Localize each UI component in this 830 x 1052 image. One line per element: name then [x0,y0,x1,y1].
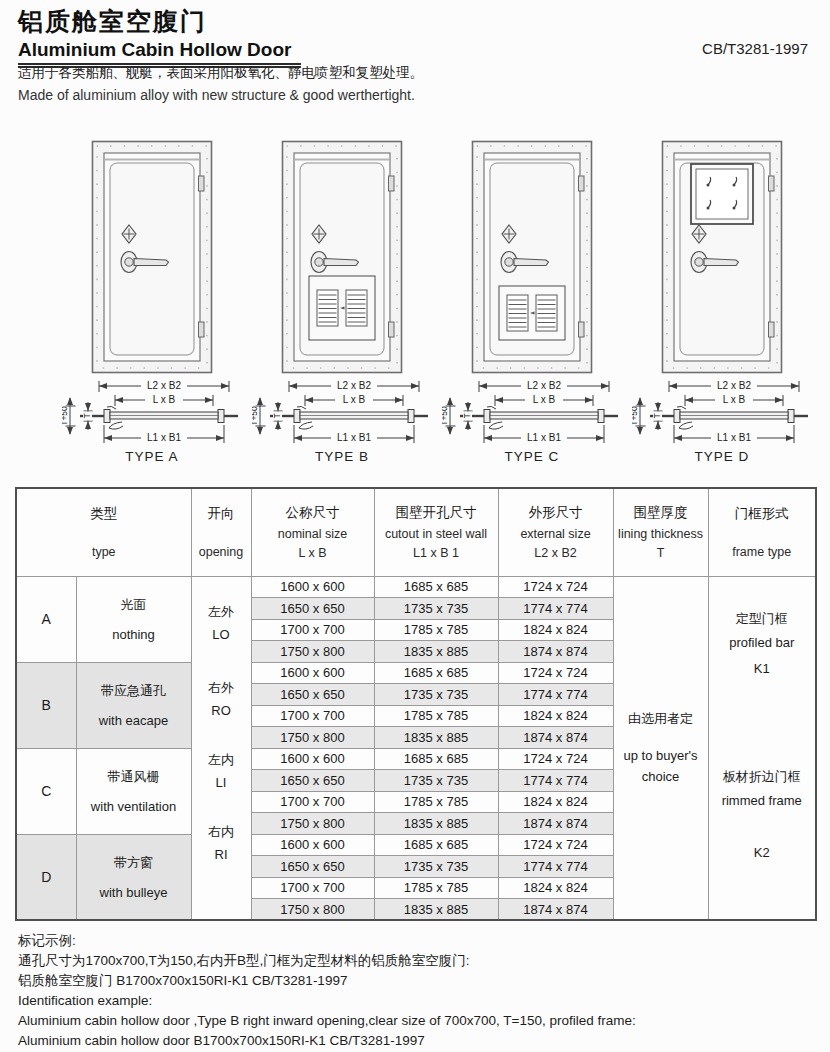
standard-code: CB/T3281-1997 [702,40,808,57]
dim-label-outer: L2 x B2 [527,380,561,391]
table-header-row: 类型type 开向opening 公称尺寸nominal sizeL x B 围… [16,488,816,576]
type-desc-a: 光面 nothing [76,576,191,662]
description-zh: 适用于各类船舶、舰艇，表面采用阳极氧化、静电喷塑和复塑处理。 [18,64,423,82]
opening-li: 左内LI [192,748,251,794]
door-diagram-type-b [281,140,403,374]
identification-example: 标记示例: 通孔尺寸为1700x700,T为150,右内开B型,门框为定型材料的… [18,931,636,1051]
door-figures-row: L2 x B2 L x B L1 x B1 T+50 T TYPE A L2 x… [62,140,812,464]
col-header-type: 类型type [16,488,191,576]
thickness-cell: 由选用者定 up to buyer's choice [613,576,708,920]
col-header-thickness: 围壁厚度lining thicknessT [613,488,708,576]
external-size-cell: 1724 x 724 [498,576,613,598]
example-line2-en: Aluminium cabin hollow door B1700x700x15… [18,1031,636,1051]
spec-table: 类型type 开向opening 公称尺寸nominal sizeL x B 围… [15,487,817,921]
cross-section-type-a: L2 x B2 L x B L1 x B1 T+50 T [62,378,242,448]
dim-label-nominal: L x B [153,394,176,405]
opening-ro: 右外RO [192,676,251,722]
example-line1-zh: 通孔尺寸为1700x700,T为150,右内开B型,门框为定型材料的铝质舱室空腹… [18,951,636,971]
type-letter-d: D [16,834,76,920]
dim-label-nominal: L x B [533,394,556,405]
cutout-size-cell: 1685 x 685 [374,576,498,598]
dim-label-t50: T+50 [442,406,449,426]
col-header-frame: 门框形式frame type [708,488,816,576]
dim-label-t50: T+50 [252,406,259,426]
type-desc-c: 带通风栅 with ventilation [76,748,191,834]
dim-label-t50: T+50 [632,406,639,426]
catalog-page: 铝质舱室空腹门 Aluminium Cabin Hollow Door CB/T… [0,0,830,1052]
door-figure-type-b: L2 x B2 L x B L1 x B1 T+50 T TYPE B [252,140,432,464]
dim-label-t: T [652,413,662,418]
door-figure-type-c: L2 x B2 L x B L1 x B1 T+50 T TYPE C [442,140,622,464]
door-diagram-type-a [91,140,213,374]
dim-label-t50: T+50 [62,406,69,426]
dim-label-outer: L2 x B2 [147,380,181,391]
col-header-type-zh: 类型 [90,505,117,523]
dim-label-nominal: L x B [343,394,366,405]
col-header-external: 外形尺寸external sizeL2 x B2 [498,488,613,576]
dim-label-outer: L2 x B2 [717,380,751,391]
dim-label-cutout: L1 x B1 [527,432,561,443]
page-title-zh: 铝质舱室空腹门 [18,5,301,38]
header: 铝质舱室空腹门 Aluminium Cabin Hollow Door [18,5,301,68]
figure-caption-type-c: TYPE C [505,449,560,464]
dim-label-cutout: L1 x B1 [337,432,371,443]
figure-caption-type-b: TYPE B [315,449,369,464]
opening-cell: 左外LO 右外RO 左内LI 右内RI [191,576,251,920]
type-letter-b: B [16,662,76,748]
dim-label-outer: L2 x B2 [337,380,371,391]
opening-lo: 左外LO [192,600,251,646]
frame-k1: 定型门框profiled barK1 [709,607,816,681]
dim-label-cutout: L1 x B1 [717,432,751,443]
example-heading-zh: 标记示例: [18,931,636,951]
door-diagram-type-c [471,140,593,374]
door-figure-type-a: L2 x B2 L x B L1 x B1 T+50 T TYPE A [62,140,242,464]
type-letter-a: A [16,576,76,662]
cross-section-type-c: L2 x B2 L x B L1 x B1 T+50 T [442,378,622,448]
dim-label-nominal: L x B [723,394,746,405]
example-line2-zh: 铝质舱室空腹门 B1700x700x150RI-K1 CB/T3281-1997 [18,971,636,991]
cross-section-type-d: L2 x B2 L x B L1 x B1 T+50 T [632,378,812,448]
col-header-cutout: 围壁开孔尺寸cutout in steel wallL1 x B 1 [374,488,498,576]
example-heading-en: Identification example: [18,991,636,1011]
nominal-size-cell: 1600 x 600 [251,576,374,598]
dim-label-cutout: L1 x B1 [147,432,181,443]
dim-label-t: T [462,413,472,418]
dim-label-t: T [82,413,92,418]
description-en: Made of aluminium alloy with new structu… [18,87,415,103]
type-desc-b: 带应急通孔 with eacape [76,662,191,748]
col-header-nominal: 公称尺寸nominal sizeL x B [251,488,374,576]
figure-caption-type-a: TYPE A [125,449,178,464]
door-diagram-type-d [661,140,783,374]
opening-ri: 右内RI [192,820,251,866]
frame-k2: 板材折边门框rimmed frameK2 [709,765,816,865]
cross-section-type-b: L2 x B2 L x B L1 x B1 T+50 T [252,378,432,448]
table-row: A 光面 nothing 左外LO 右外RO 左内LI 右内RI 1600 x … [16,576,816,598]
type-letter-c: C [16,748,76,834]
col-header-type-en: type [92,545,116,559]
figure-caption-type-d: TYPE D [695,449,750,464]
example-line1-en: Aluminium cabin hollow door ,Type B righ… [18,1011,636,1031]
type-desc-d: 带方窗 with bulleye [76,834,191,920]
door-figure-type-d: L2 x B2 L x B L1 x B1 T+50 T TYPE D [632,140,812,464]
dim-label-t: T [272,413,282,418]
frame-type-cell: 定型门框profiled barK1 板材折边门框rimmed frameK2 [708,576,816,920]
col-header-opening: 开向opening [191,488,251,576]
